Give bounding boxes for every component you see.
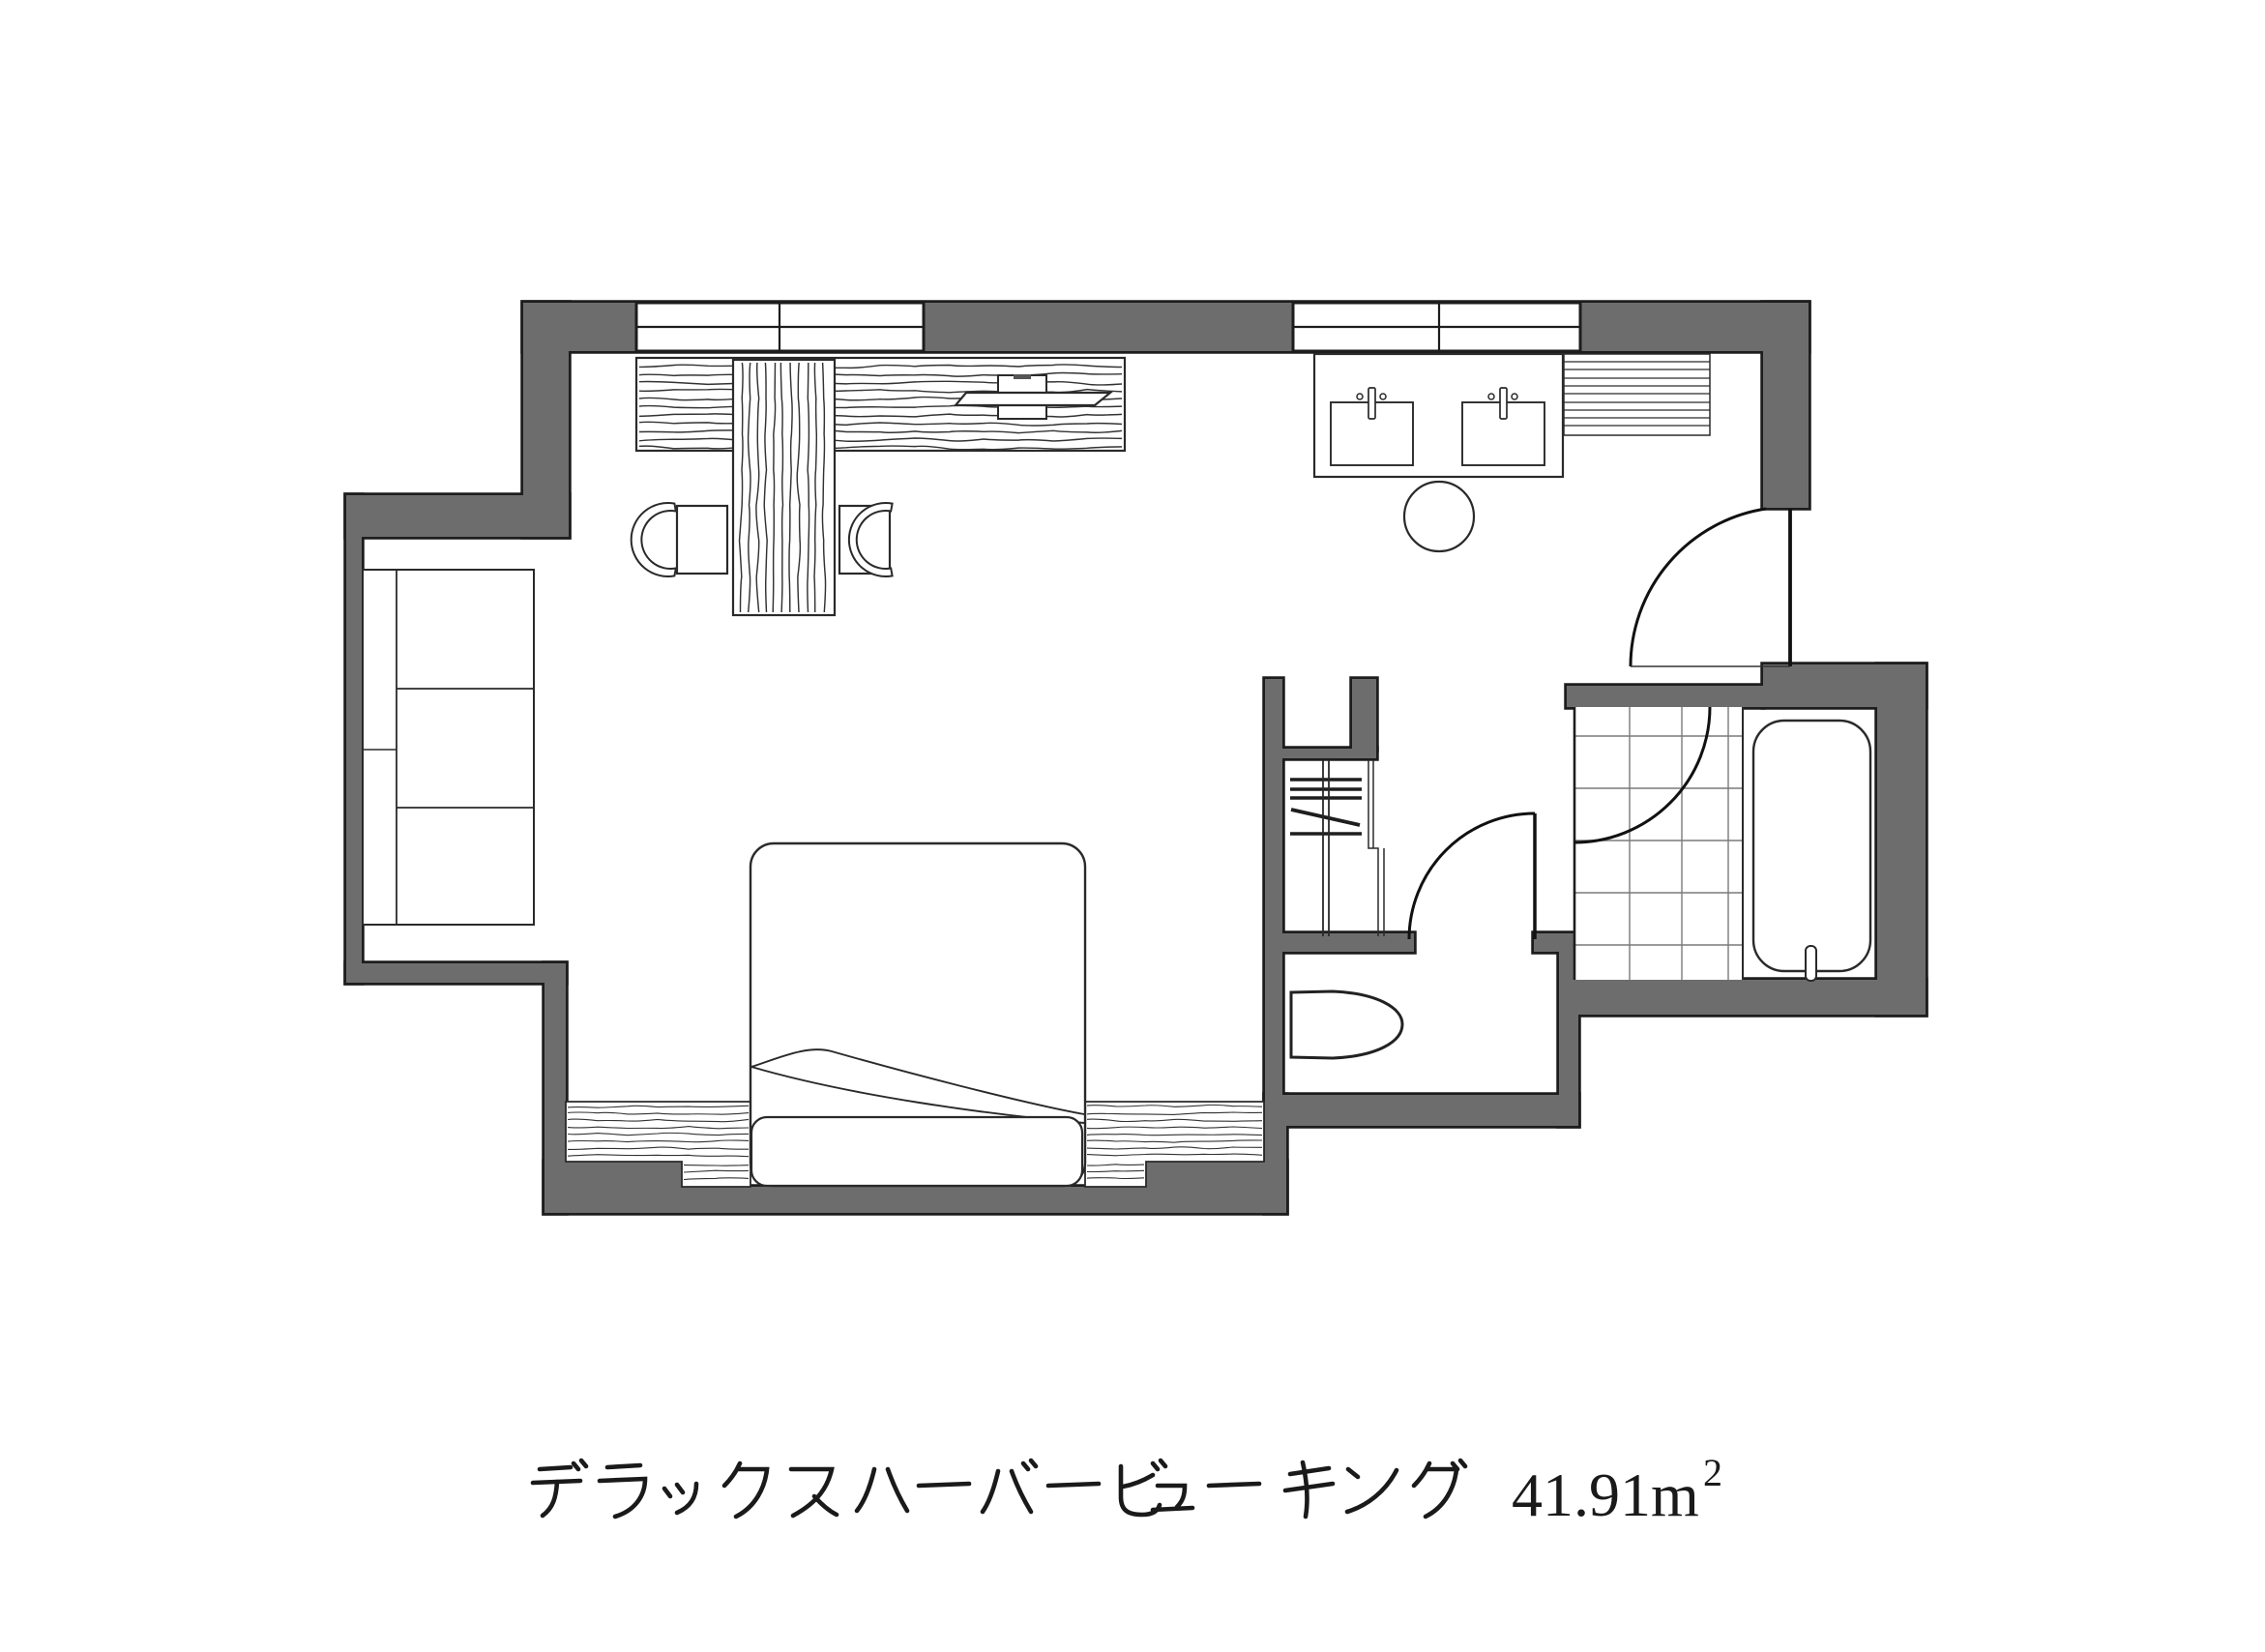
svg-text:41.91m: 41.91m xyxy=(1512,1460,1699,1529)
svg-text:2: 2 xyxy=(1703,1451,1722,1494)
